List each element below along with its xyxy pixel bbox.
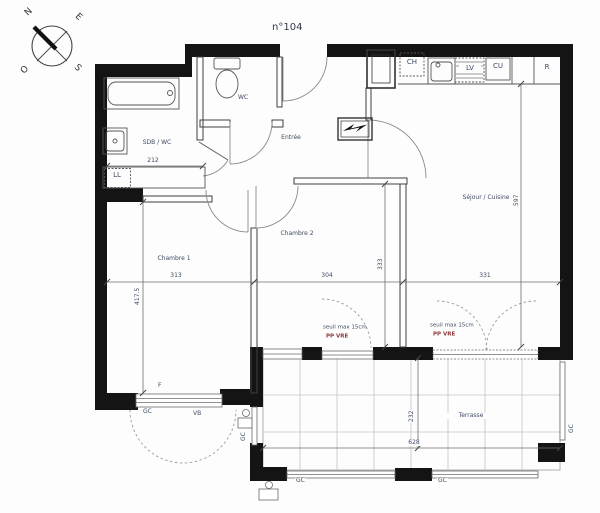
bathtub: [104, 78, 179, 109]
door-type-note: PP VRE: [326, 334, 348, 340]
dim-sejour-width: 331: [465, 273, 505, 279]
post-column: [266, 482, 273, 489]
washer-label: LL: [104, 172, 130, 179]
plan-title: n°104: [272, 23, 332, 34]
dim-terrasse-depth: 232: [409, 410, 415, 423]
guardrail-label: GC: [569, 424, 575, 433]
windows-railings: [136, 349, 565, 500]
outer-walls: [95, 44, 573, 481]
room-label-chambre2: Chambre 2: [271, 231, 323, 237]
fridge-label: R: [534, 64, 560, 71]
shutter-label: VB: [193, 411, 201, 417]
dishwasher-label: LV: [459, 65, 481, 72]
toilet: [214, 58, 240, 98]
plan-drawing: [0, 0, 600, 513]
dim-terrasse-width: 628: [396, 440, 432, 446]
room-label-entree: Entrée: [271, 135, 311, 141]
cooker-label: CU: [486, 63, 510, 70]
room-label-wc: WC: [233, 95, 253, 101]
dim-chambre1-depth: 417.5: [135, 287, 141, 306]
room-label-terrasse: Terrasse: [445, 413, 497, 419]
kitchen-sink: [428, 58, 455, 84]
bathroom-fixtures: [103, 58, 240, 188]
room-label-sejour: Séjour / Cuisine: [455, 195, 517, 201]
lightning-bolt-icon: [343, 124, 367, 132]
dim-sejour-depth: 597: [514, 194, 520, 207]
dim-sdb-width: 212: [133, 158, 173, 164]
dim-chambre1-width: 313: [156, 273, 196, 279]
guardrail-label: GC: [437, 478, 448, 484]
compass-needle: [34, 27, 56, 49]
floor-plan: n°104 N E O S SDB / WC WC Entrée Séjour …: [0, 0, 600, 513]
room-label-sdb: SDB / WC: [132, 140, 182, 146]
interior-walls: [143, 57, 407, 393]
room-label-chambre1: Chambre 1: [148, 256, 200, 262]
dim-chambre2-width: 304: [307, 273, 347, 279]
door-type-note: PP VRE: [433, 332, 455, 338]
dim-chambre2-depth: 333: [378, 258, 384, 271]
guardrail-label: GC: [143, 409, 152, 415]
threshold-note: seuil max 15cm: [323, 325, 367, 331]
shutter-swing-arc: [130, 410, 236, 463]
dimension-lines: [107, 84, 560, 448]
guardrail-label: GC: [295, 478, 306, 484]
door-swings: [199, 57, 426, 232]
guardrail-label: GC: [241, 432, 247, 441]
window-label: F: [158, 383, 161, 389]
boiler-label: CH: [400, 59, 424, 66]
post-column: [243, 410, 250, 417]
compass-icon: [32, 26, 72, 66]
threshold-note: seuil max 15cm: [430, 323, 474, 329]
